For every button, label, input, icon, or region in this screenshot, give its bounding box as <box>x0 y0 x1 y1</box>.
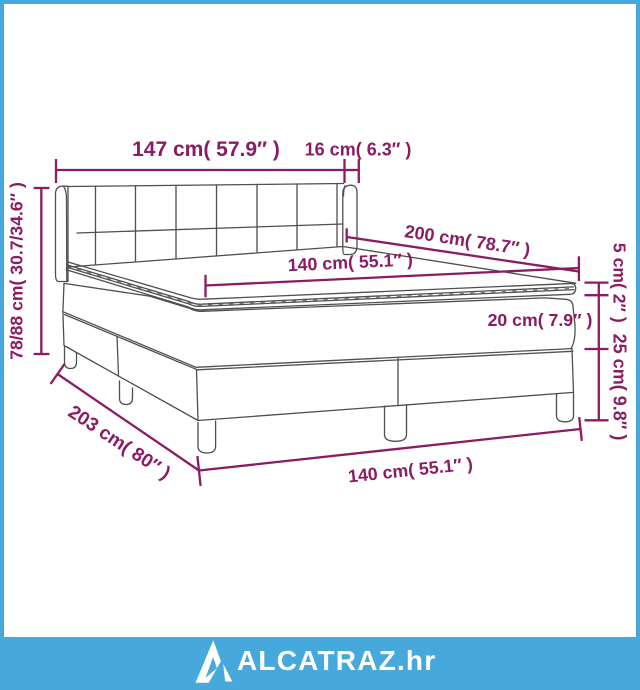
svg-text:78/88 cm( 30.7/34.6″ ): 78/88 cm( 30.7/34.6″ ) <box>6 182 26 360</box>
svg-text:16 cm( 6.3″ ): 16 cm( 6.3″ ) <box>305 140 412 160</box>
svg-text:ALCATRAZ.hr: ALCATRAZ.hr <box>237 645 436 676</box>
svg-text:25 cm( 9.8″ ): 25 cm( 9.8″ ) <box>610 334 630 441</box>
svg-text:147 cm( 57.9″ ): 147 cm( 57.9″ ) <box>132 138 280 161</box>
svg-text:20 cm( 7.9″ ): 20 cm( 7.9″ ) <box>488 310 593 330</box>
svg-text:5 cm( 2″ ): 5 cm( 2″ ) <box>610 243 630 323</box>
